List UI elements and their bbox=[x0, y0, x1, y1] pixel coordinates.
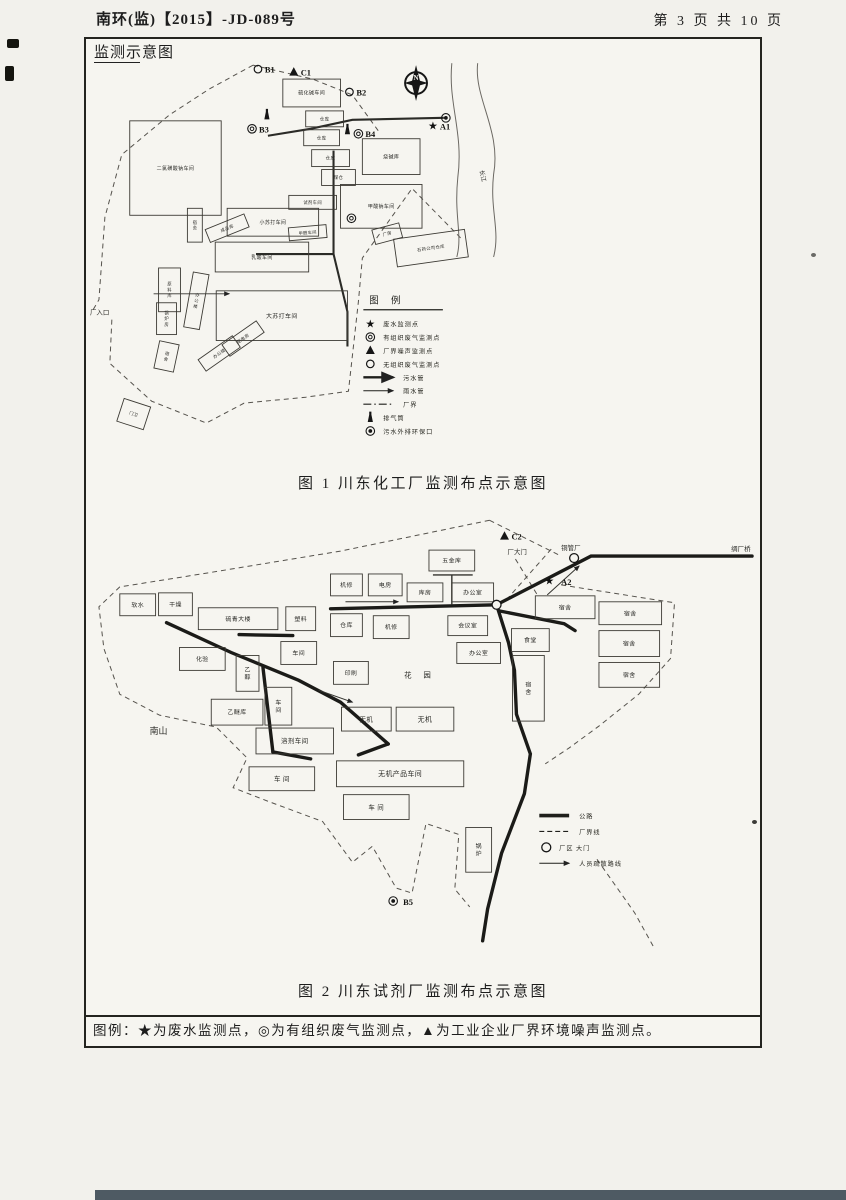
monitor-point-label: B4 bbox=[365, 129, 376, 139]
exhaust-stack-icon bbox=[345, 124, 350, 134]
fig1-factory-map: 二氯磺酸钠车间硫化碱车间仓库仓库仓库煤仓烧碱库甲酸钠车间试剂车间小苏打车间乳酸车… bbox=[86, 52, 760, 472]
road-line bbox=[263, 667, 273, 751]
star-marker-icon: ★ bbox=[544, 576, 554, 588]
triangle-marker-icon bbox=[500, 531, 509, 539]
building-label: 仓库 bbox=[326, 155, 336, 162]
building: 锅炉 bbox=[466, 827, 492, 872]
building-label: 五金库 bbox=[442, 557, 461, 565]
north-compass-icon: N bbox=[404, 65, 428, 101]
monitor-point-label: B2 bbox=[356, 87, 366, 97]
building-label: 宿舍 bbox=[525, 681, 531, 696]
legend-item-label: 无组织废气监测点 bbox=[383, 361, 440, 369]
legend-item-label: 有组织废气监测点 bbox=[383, 334, 440, 342]
building-label: 会议室 bbox=[458, 622, 477, 630]
building: 仓库 bbox=[312, 150, 350, 167]
building: 仓库 bbox=[304, 130, 340, 146]
legend-item-label: 雨水管 bbox=[403, 388, 424, 396]
building-label: 小苏打车间 bbox=[259, 219, 286, 226]
building: 仓库 bbox=[306, 111, 344, 127]
legend-note: 图例：★为废水监测点，◎为有组织废气监测点，▲为工业企业厂界环境噪声监测点。 bbox=[86, 1015, 760, 1046]
content-frame: 监测示意图 二氯磺酸钠车间硫化碱车间仓库仓库仓库煤仓烧碱库甲酸钠车间试剂车间小苏… bbox=[84, 37, 762, 1048]
building-label: 硫化碱车间 bbox=[298, 90, 325, 97]
legend-title: 图 例 bbox=[369, 295, 405, 307]
double-circle-marker-icon bbox=[366, 333, 375, 342]
map-text-label: 铜管厂 bbox=[561, 543, 581, 552]
building-label: 煤仓 bbox=[334, 174, 344, 181]
double-circle-marker-icon bbox=[248, 125, 257, 134]
building-label: 仓库 bbox=[317, 134, 327, 141]
building: 二氯磺酸钠车间 bbox=[130, 121, 221, 215]
building-label: 无机 bbox=[359, 714, 373, 723]
building: 宿舍 bbox=[187, 208, 202, 242]
building-label: 车 间 bbox=[274, 774, 290, 783]
scanned-report-page: 南环(监)【2015】-JD-089号 第 3 页 共 10 页 监测示意图 二… bbox=[0, 0, 846, 1200]
legend-item-label: 厂界线 bbox=[579, 828, 600, 836]
monitor-point-label: B1 bbox=[265, 65, 275, 75]
road-line bbox=[499, 611, 576, 631]
monitor-point-label: C1 bbox=[301, 68, 311, 78]
map-text-label: 绸厂桥 bbox=[731, 544, 751, 553]
double-circle-marker-icon bbox=[350, 216, 354, 220]
document-number: 南环(监)【2015】-JD-089号 bbox=[96, 8, 296, 29]
building-label: 试剂车间 bbox=[303, 199, 322, 206]
building-label: 石药公司仓库 bbox=[417, 243, 446, 254]
building: 办公室 bbox=[452, 583, 494, 602]
building-label: 乙醇 bbox=[245, 667, 251, 681]
legend-item-label: 厂区 大门 bbox=[559, 844, 590, 852]
pipe-line bbox=[268, 118, 444, 136]
triangle-marker-icon bbox=[366, 346, 375, 354]
building-label: 溶剂车间 bbox=[281, 736, 308, 745]
building: 锅炉房 bbox=[157, 303, 177, 335]
building: 会议室 bbox=[448, 616, 488, 636]
map-text-label: 花 园 bbox=[404, 669, 436, 679]
road-line bbox=[331, 605, 497, 609]
building: 大苏打车间 bbox=[216, 291, 347, 341]
building-label: 乳酸车间 bbox=[251, 254, 272, 261]
building: 干燥 bbox=[159, 593, 193, 616]
road-line bbox=[358, 744, 388, 755]
monitor-point-label: A1 bbox=[440, 121, 450, 131]
building: 厂房 bbox=[372, 223, 403, 245]
exhaust-stack-icon bbox=[264, 109, 269, 119]
boundary-dashed-line bbox=[597, 859, 655, 948]
road-line bbox=[167, 623, 389, 744]
building: 机修 bbox=[331, 574, 363, 596]
double-circle-marker-icon bbox=[357, 132, 361, 136]
building-label: 锅炉房 bbox=[164, 309, 169, 328]
building-label: 宿舍 bbox=[623, 671, 636, 679]
building: 乳酸车间 bbox=[215, 242, 308, 272]
map-text-label: 厂入口 bbox=[90, 309, 109, 317]
building: 五金库 bbox=[429, 550, 475, 571]
building: 宿舍 bbox=[599, 602, 662, 625]
legend-item-label: 废水监测点 bbox=[383, 321, 419, 329]
building-label: 塑料 bbox=[294, 615, 307, 623]
scan-speck bbox=[811, 253, 816, 257]
building: 宿舍 bbox=[535, 596, 595, 619]
map-legend: 公路厂界线厂区 大门人员疏散路线 bbox=[539, 813, 622, 869]
building-label: 锅炉 bbox=[476, 842, 482, 857]
legend-item-label: 污水外排环保口 bbox=[383, 428, 433, 436]
building-label: 车间 bbox=[292, 649, 305, 657]
boundary-dashed-line bbox=[99, 520, 490, 907]
building-label: 办公室 bbox=[463, 588, 482, 596]
building-label: 硫青大楼 bbox=[225, 615, 250, 623]
double-circle-marker-icon bbox=[369, 335, 373, 339]
boundary-dashed-line bbox=[545, 585, 674, 764]
building-label: 机修 bbox=[385, 623, 398, 631]
outfall-marker-icon bbox=[444, 116, 448, 120]
outfall-marker-icon bbox=[391, 899, 395, 903]
monitor-point-label: B3 bbox=[259, 124, 269, 134]
building-label: 宿舍 bbox=[623, 640, 636, 648]
building-label: 软水 bbox=[131, 601, 144, 609]
building: 原料库 bbox=[159, 268, 181, 312]
building-label: 厂房 bbox=[382, 229, 393, 238]
building-label: 印刷 bbox=[345, 669, 358, 677]
building-label: 烧碱库 bbox=[383, 153, 399, 160]
building: 电房 bbox=[368, 574, 402, 596]
building-label: 宿舍 bbox=[193, 219, 198, 232]
building-label: 大苏打车间 bbox=[266, 312, 298, 320]
building: 溶剂车间 bbox=[256, 728, 334, 754]
building-label: 仓库 bbox=[340, 621, 353, 629]
building-label: 办公室 bbox=[469, 649, 488, 657]
building: 办公楼 bbox=[184, 272, 209, 330]
building-label: 车间 bbox=[275, 699, 281, 714]
page-counter: 第 3 页 共 10 页 bbox=[654, 10, 785, 30]
building: 门卫 bbox=[117, 398, 151, 429]
building: 煤仓 bbox=[322, 170, 356, 186]
building-label: 甲醛车间 bbox=[298, 228, 317, 236]
legend-item-label: 排气筒 bbox=[383, 415, 404, 423]
building: 宿舍 bbox=[154, 341, 179, 372]
building-label: 无机 bbox=[418, 715, 433, 724]
building: 车间 bbox=[281, 642, 317, 665]
building-label: 食堂 bbox=[524, 636, 537, 644]
triangle-marker-icon bbox=[289, 67, 298, 75]
building: 塑料 bbox=[286, 607, 316, 631]
building: 软水 bbox=[120, 594, 156, 616]
building: 硫青大楼 bbox=[198, 608, 278, 630]
gate-circle-icon bbox=[542, 843, 551, 852]
building-label: 宿舍 bbox=[624, 609, 637, 617]
gate-circle-icon bbox=[492, 600, 501, 609]
building-label: 机修 bbox=[340, 581, 353, 589]
building-label: 库房 bbox=[419, 588, 432, 596]
compass-n-label: N bbox=[414, 74, 419, 82]
building: 宿舍 bbox=[599, 631, 660, 657]
building: 甲醛车间 bbox=[288, 225, 327, 241]
building: 食堂 bbox=[511, 629, 549, 652]
legend-item-label: 公路 bbox=[579, 813, 593, 821]
monitor-point-label: B5 bbox=[403, 897, 413, 907]
legend-item-label: 人员疏散路线 bbox=[579, 860, 622, 868]
building-label: 门卫 bbox=[128, 409, 139, 419]
building: 乙醚库 bbox=[211, 699, 263, 725]
fig2-caption: 图 2 川东试剂厂监测布点示意图 bbox=[86, 980, 760, 1001]
building-label: 原料库 bbox=[167, 282, 172, 300]
boundary-dashed-line bbox=[92, 65, 253, 312]
road-line bbox=[273, 752, 311, 759]
outfall-marker-icon bbox=[368, 429, 372, 433]
boundary-dashed-line bbox=[253, 65, 378, 131]
building: 印刷 bbox=[334, 661, 369, 684]
double-circle-marker-icon bbox=[347, 214, 356, 223]
building-label: 宿舍 bbox=[163, 350, 171, 364]
building: 办公室 bbox=[457, 643, 501, 664]
building: 库房 bbox=[407, 583, 443, 602]
building: 车 间 bbox=[249, 767, 315, 791]
building-label: 甲酸钠车间 bbox=[368, 203, 395, 210]
gate-circle-icon bbox=[570, 554, 579, 563]
building-label: 无机产品车间 bbox=[378, 769, 422, 778]
double-circle-marker-icon bbox=[250, 127, 254, 131]
circle-marker-icon bbox=[254, 65, 262, 73]
river-line bbox=[477, 63, 496, 257]
building-label: 宿舍 bbox=[559, 603, 572, 611]
road-line bbox=[497, 556, 752, 605]
star-marker-icon: ★ bbox=[365, 318, 375, 330]
building: 车 间 bbox=[343, 795, 409, 820]
building: 仓库 bbox=[331, 614, 363, 637]
map-text-label: 南山 bbox=[150, 725, 168, 736]
building-label: 二氯磺酸钠车间 bbox=[157, 165, 195, 172]
river-line bbox=[451, 63, 459, 257]
circle-marker-icon bbox=[367, 360, 375, 368]
building-label: 仓库 bbox=[320, 115, 330, 122]
circle-marker-icon bbox=[346, 88, 354, 96]
double-circle-marker-icon bbox=[354, 129, 363, 138]
scan-speck bbox=[752, 820, 757, 824]
monitor-point-label: A2 bbox=[561, 577, 571, 587]
building: 烧碱库 bbox=[362, 139, 420, 175]
scan-edge-strip bbox=[95, 1190, 846, 1200]
building-label: 车 间 bbox=[368, 802, 384, 811]
building-label: 干燥 bbox=[169, 600, 182, 608]
building-label: 乙醚库 bbox=[228, 708, 247, 716]
building-label: 化验 bbox=[196, 655, 209, 663]
building-label: 电房 bbox=[379, 581, 392, 589]
building: 机修 bbox=[373, 616, 409, 639]
star-marker-icon: ★ bbox=[428, 121, 438, 133]
building: 无机产品车间 bbox=[337, 761, 464, 787]
legend-item-label: 厂界 bbox=[403, 402, 417, 409]
monitor-point-label: C2 bbox=[511, 532, 521, 542]
fig2-factory-map: 软水干燥硫青大楼塑料机修电房库房办公室五金库仓库机修会议室办公室宿舍宿舍宿舍宿舍… bbox=[86, 507, 760, 967]
legend-item-label: 厂界噪声监测点 bbox=[383, 347, 433, 355]
building: 硫化碱车间 bbox=[283, 79, 341, 107]
building: 宿舍 bbox=[599, 662, 660, 687]
legend-item-label: 污水管 bbox=[403, 374, 424, 382]
map-legend: 图 例★废水监测点有组织废气监测点厂界噪声监测点无组织废气监测点污水管雨水管厂界… bbox=[363, 295, 443, 436]
map-text-label: 厂大门 bbox=[507, 547, 526, 556]
scan-speck bbox=[5, 66, 14, 81]
road-line bbox=[239, 635, 293, 636]
building: 试剂车间 bbox=[289, 195, 337, 209]
building: 无机 bbox=[396, 707, 454, 731]
map-text-label: 长江 bbox=[478, 169, 488, 182]
scan-speck bbox=[7, 39, 19, 48]
building: 化验 bbox=[179, 648, 225, 671]
exhaust-stack-icon bbox=[368, 412, 373, 422]
fig1-caption: 图 1 川东化工厂监测布点示意图 bbox=[86, 472, 760, 493]
